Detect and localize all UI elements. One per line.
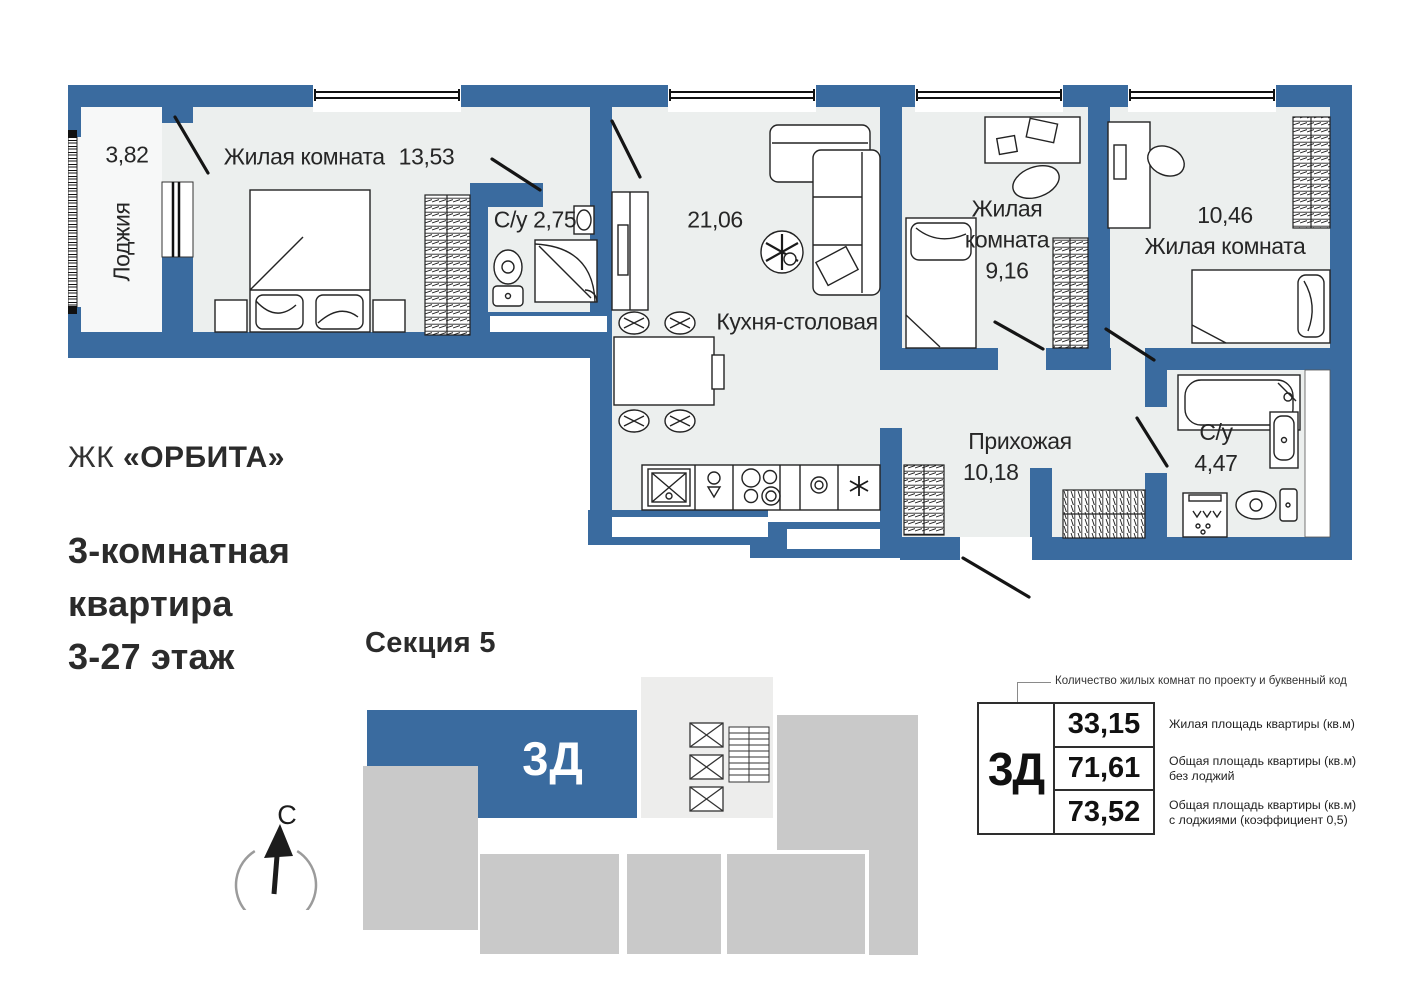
room-name: Жилая комната [224,144,385,170]
loggia-glazing-icon [68,130,77,314]
room-label-bedroom1: Жилая комната13,53 [224,144,454,171]
floorplan-page: 3,82 Лоджия Жилая комната13,53 С/у 2,75 … [0,0,1414,1000]
shaft [1305,370,1330,537]
wardrobe-icon [425,195,470,335]
balcony-window-icon [162,182,193,257]
tall-cabinet-icon [612,192,648,310]
plant-icon [761,231,803,273]
total-area-value: 71,61 [1055,748,1153,792]
room-label-bath1: С/у 2,75 [494,207,576,234]
total-area-label: Общая площадь квартиры (кв.м) без лоджий [1169,754,1365,783]
room-area-loggia: 3,82 [105,142,148,169]
room-area: 4,47 [1171,448,1261,479]
room-name: Прихожая [935,426,1105,457]
room-area: 13,53 [399,144,455,170]
stool-icon [665,410,695,432]
room-name: Жилая комната [1130,231,1320,262]
room-area: 10,18 [935,457,1105,488]
stairs-icon [729,727,769,782]
room-label-bedroom2: Жилая комната 9,16 [947,194,1067,287]
north-compass: С [228,790,348,910]
complex-title: ЖК «ОРБИТА» [68,441,285,475]
apartment-title: 3-комнатная квартира 3-27 этаж [68,524,290,683]
dining-table-icon [614,337,724,405]
room-area: 9,16 [947,256,1067,287]
room-area-kitchen: 21,06 [687,207,743,234]
north-label: С [272,800,302,831]
room-label-bath2: С/у 4,47 [1171,417,1261,479]
section-diagram-drawing [363,665,920,957]
room-name: С/у [1171,417,1261,448]
window-icon [313,85,461,112]
apartment-info-table: Количество жилых комнат по проекту и бук… [977,670,1377,845]
section-title: Секция 5 [365,627,496,660]
room-name: С/у [494,207,527,233]
sink-icon [574,206,594,234]
window-icon [668,85,816,112]
wardrobe-icon [1063,490,1145,538]
toilet-icon [493,250,523,306]
complex-prefix: ЖК [68,441,114,474]
callout-text: Количество жилых комнат по проекту и бук… [1055,675,1355,687]
shower-icon [535,240,597,302]
stool-icon [619,410,649,432]
single-bed-icon [1192,270,1330,343]
room-area: 10,46 [1130,200,1320,231]
desk-icon [985,117,1080,163]
living-area-label: Жилая площадь квартиры (кв.м) [1169,717,1365,732]
room-label-loggia: Лоджия [109,202,136,281]
unit-code-cell: 3Д [979,704,1055,833]
total-area-with-loggia-value: 73,52 [1055,791,1153,833]
stool-icon [665,312,695,334]
toilet-icon [1236,489,1297,521]
apartment-floors: 3-27 этаж [68,630,290,683]
room-label-bedroom3: 10,46 Жилая комната [1130,200,1320,262]
stool-icon [619,312,649,334]
apartment-type-line2: квартира [68,577,290,630]
room-name: Жилая комната [957,194,1057,256]
window-icon [915,85,1063,112]
unit-code-label: 3Д [503,731,603,786]
complex-name: «ОРБИТА» [123,441,285,474]
section-diagram: 3Д [363,665,920,957]
sink-icon [1270,412,1298,468]
window-icon [1128,85,1276,112]
elevator-icon [690,723,723,811]
room-area: 2,75 [533,207,576,233]
apartment-type-line1: 3-комнатная [68,524,290,577]
room-label-kitchen: Кухня-столовая [716,309,877,336]
total-area-with-loggia-label: Общая площадь квартиры (кв.м) с лоджиями… [1169,798,1365,827]
area-table: 3Д 33,15 71,61 73,52 [977,702,1155,835]
room-label-hallway: Прихожая 10,18 [935,426,1105,488]
kitchen-counter-icon [642,465,880,510]
living-area-value: 33,15 [1055,704,1153,748]
callout-connector [1017,682,1051,703]
washing-machine-icon [1183,493,1227,537]
area-values: 33,15 71,61 73,52 [1055,704,1153,833]
